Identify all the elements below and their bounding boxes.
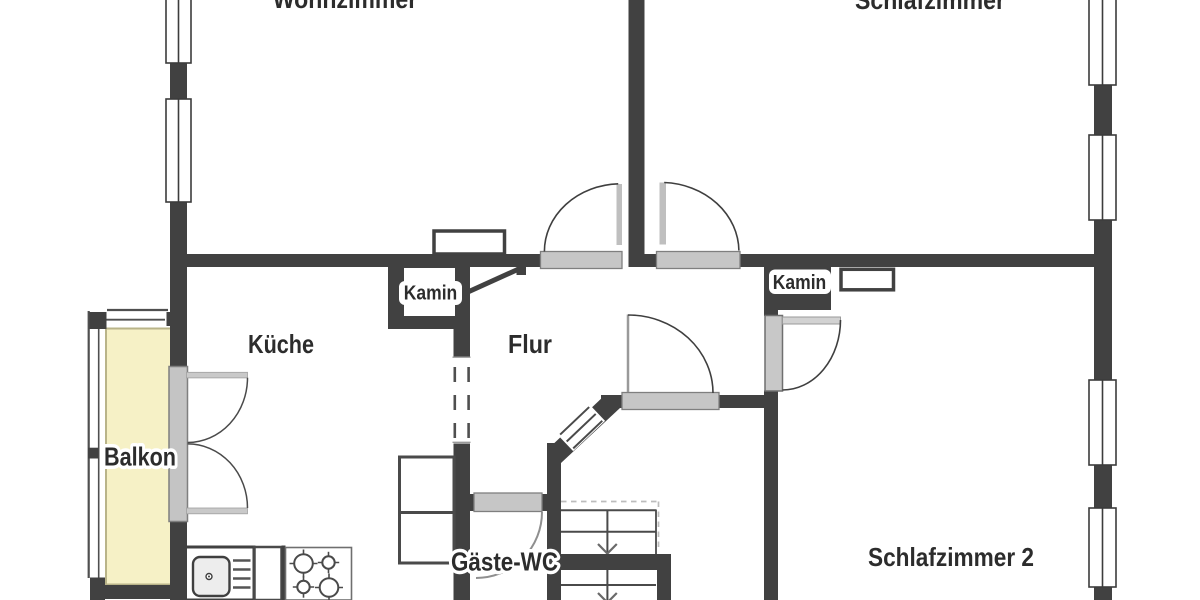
svg-text:Schlafzimmer 2: Schlafzimmer 2 bbox=[868, 542, 1034, 572]
svg-text:Küche: Küche bbox=[248, 329, 314, 359]
svg-text:Schlafzimmer: Schlafzimmer bbox=[855, 0, 1005, 15]
svg-text:Gäste-WC: Gäste-WC bbox=[451, 547, 558, 577]
svg-text:Flur: Flur bbox=[508, 329, 552, 359]
svg-text:Wohnzimmer: Wohnzimmer bbox=[273, 0, 418, 14]
svg-text:Kamin: Kamin bbox=[404, 283, 458, 305]
svg-text:Balkon: Balkon bbox=[104, 442, 176, 472]
svg-text:Kamin: Kamin bbox=[773, 272, 827, 294]
